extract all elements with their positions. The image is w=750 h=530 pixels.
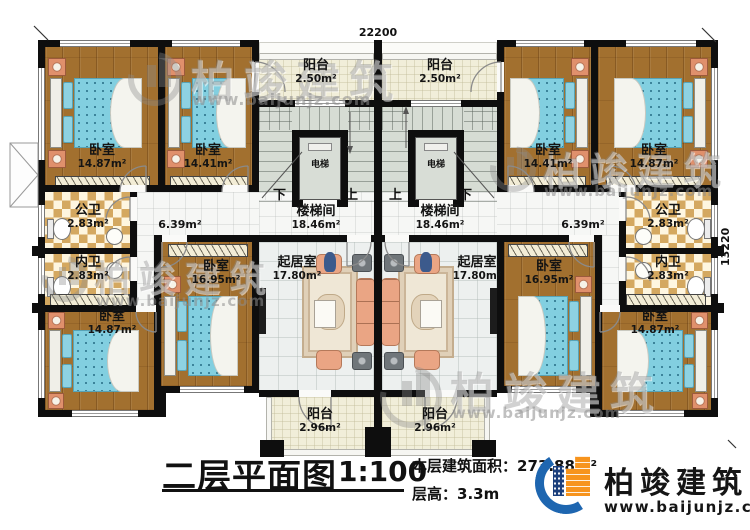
room-label-living-left: 起居室17.80m² [262,255,332,283]
bed [49,330,139,392]
nightstand [690,58,708,76]
room-label-bedroom-top-inner-right: 卧室14.41m² [513,143,583,171]
room-label-bedroom-top-inner-left: 卧室14.41m² [173,143,243,171]
nightstand [48,150,66,168]
nightstand [690,150,708,168]
corridor-strip-right [602,235,619,312]
bed [617,330,707,392]
room-label-bedroom-top-outer-left: 卧室14.87m² [67,143,137,171]
room-label-balcony-bottom-left: 阳台2.96m² [285,407,355,435]
room-label-hallway-right: 6.39m² [548,219,618,232]
title-underline [162,489,404,492]
room-label-balcony-top-left: 阳台2.50m² [281,58,351,86]
dimension-overall-width: 22200 [350,26,406,39]
room-label-elevator-left: 电梯 [300,160,340,171]
corridor-strip-left [137,235,154,312]
room-label-stairwell-left: 楼梯间18.46m² [276,204,356,232]
bed [510,78,588,148]
room-label-balcony-bottom-right: 阳台2.96m² [400,407,470,435]
person-figure [420,252,432,272]
nightstand [691,312,708,329]
brand-name: 柏竣建筑 [604,458,748,502]
tv-unit [490,288,497,334]
room-label-hallway-left: 6.39m² [145,219,215,232]
nightstand [164,276,181,293]
nightstand [692,393,708,409]
stair-direction-down-left: 下 [273,184,286,203]
stair-direction-down-right: 下 [459,184,472,203]
room-label-bedroom-bottom-inner-left: 卧室16.95m² [181,259,251,287]
stair-direction-up-left: 上 [345,184,358,203]
room-label-bedroom-bottom-outer-right: 卧室14.87m² [620,309,690,337]
bed [518,296,592,376]
room-label-private-bath-right: 内卫2.83m² [633,255,703,283]
dimension-overall-depth: 13220 [719,214,732,266]
room-label-private-bath-left: 内卫2.83m² [53,255,123,283]
room-label-elevator-right: 电梯 [416,160,456,171]
bed [614,78,706,148]
nightstand [167,58,185,76]
floor-plan-page: 柏竣建筑 www.baijunjz.com 柏竣建筑 www.baijunjz.… [0,0,750,530]
room-label-balcony-top-right: 阳台2.50m² [405,58,475,86]
nightstand [571,58,589,76]
room-label-stairwell-right: 楼梯间18.46m² [400,204,480,232]
nightstand [48,58,66,76]
bed [164,296,238,376]
stair-direction-up-right: 上 [389,184,402,203]
bed [168,78,246,148]
tv-unit [259,288,266,334]
nightstand [48,312,65,329]
floor-height-text: 层高：3.3m [412,483,499,504]
bed [50,78,142,148]
room-label-bedroom-top-outer-right: 卧室14.87m² [619,143,689,171]
nightstand [48,393,64,409]
brand-logo-icon [533,450,599,516]
room-label-public-bath-right: 公卫2.83m² [633,203,703,231]
brand-url: www.baijunjz.com [604,498,750,516]
room-label-public-bath-left: 公卫2.83m² [53,203,123,231]
room-label-bedroom-bottom-inner-right: 卧室16.95m² [514,259,584,287]
room-label-living-right: 起居室17.80m² [442,255,512,283]
room-label-bedroom-bottom-outer-left: 卧室14.87m² [77,309,147,337]
